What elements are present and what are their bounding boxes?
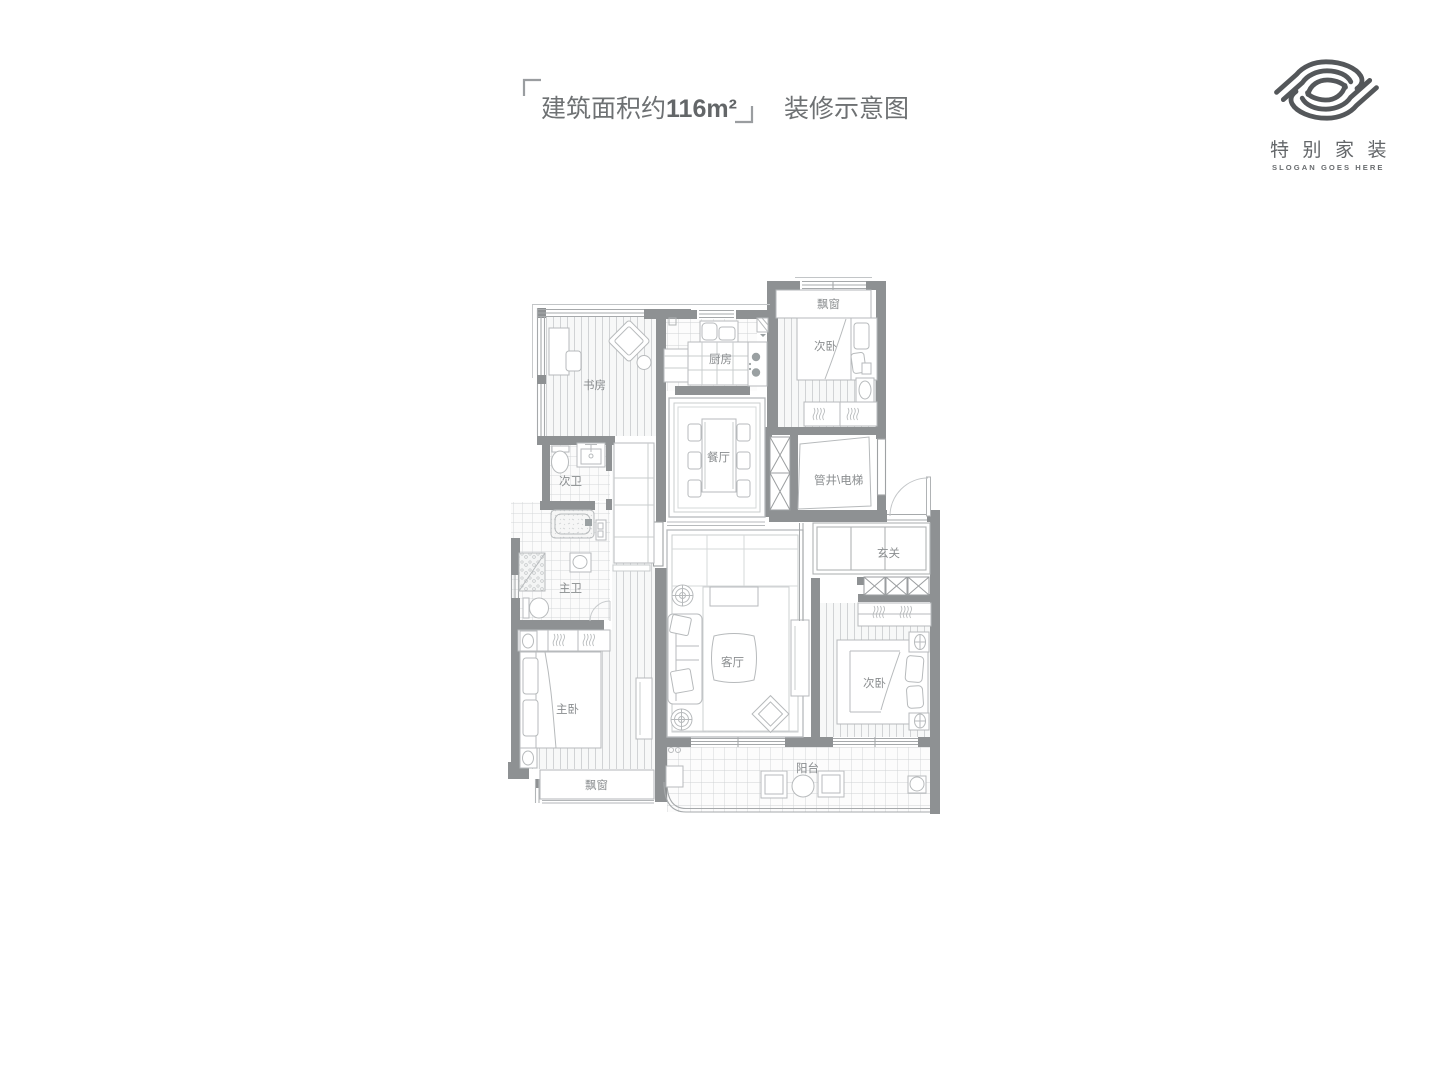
svg-text:书房: 书房	[583, 379, 606, 392]
svg-text:主卫: 主卫	[559, 582, 582, 595]
svg-text:飘窗: 飘窗	[585, 778, 608, 792]
svg-text:厨房: 厨房	[709, 353, 732, 366]
svg-text:建筑面积约116m²: 建筑面积约116m²	[541, 95, 737, 123]
svg-text:SLOGAN GOES HERE: SLOGAN GOES HERE	[1272, 163, 1385, 172]
svg-text:管井\电梯: 管井\电梯	[814, 473, 863, 487]
svg-text:次卧: 次卧	[814, 339, 837, 353]
svg-text:主卧: 主卧	[556, 703, 579, 716]
svg-text:次卫: 次卫	[559, 474, 582, 488]
svg-text:玄关: 玄关	[877, 546, 900, 560]
svg-text:客厅: 客厅	[721, 655, 744, 669]
svg-text:阳台: 阳台	[796, 761, 819, 775]
svg-text:飘窗: 飘窗	[817, 297, 840, 311]
svg-text:特别家装: 特别家装	[1270, 139, 1400, 161]
svg-text:装修示意图: 装修示意图	[784, 95, 909, 123]
svg-text:餐厅: 餐厅	[707, 450, 730, 464]
svg-text:次卧: 次卧	[863, 676, 886, 690]
